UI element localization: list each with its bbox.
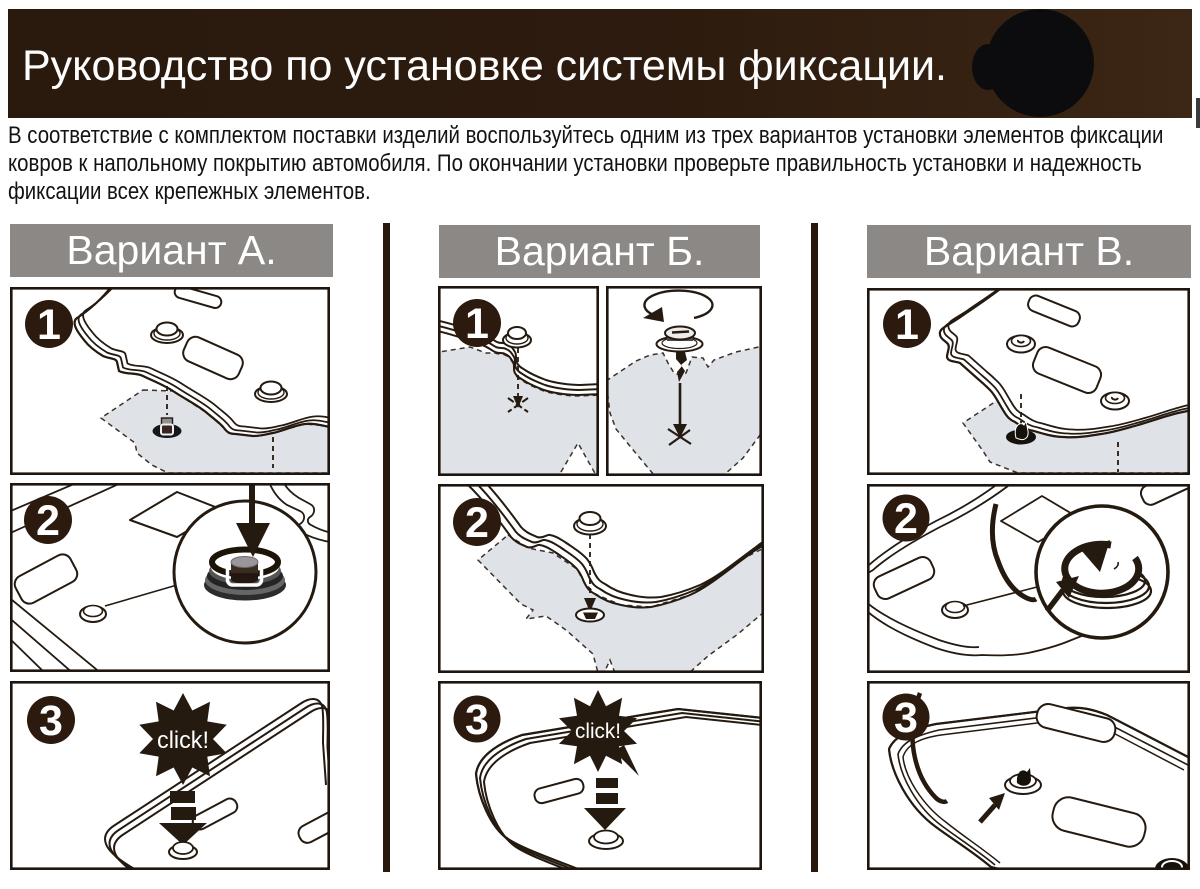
svg-text:2: 2 (465, 499, 489, 547)
svg-text:3: 3 (465, 696, 489, 744)
svg-text:1: 1 (895, 301, 919, 349)
svg-text:3: 3 (39, 697, 63, 745)
svg-text:2: 2 (36, 497, 60, 545)
svg-text:3: 3 (894, 694, 918, 742)
svg-text:1: 1 (465, 300, 489, 348)
svg-text:click!: click! (157, 727, 209, 754)
svg-text:2: 2 (894, 495, 918, 543)
svg-text:1: 1 (37, 301, 61, 349)
svg-text:click!: click! (575, 720, 621, 743)
